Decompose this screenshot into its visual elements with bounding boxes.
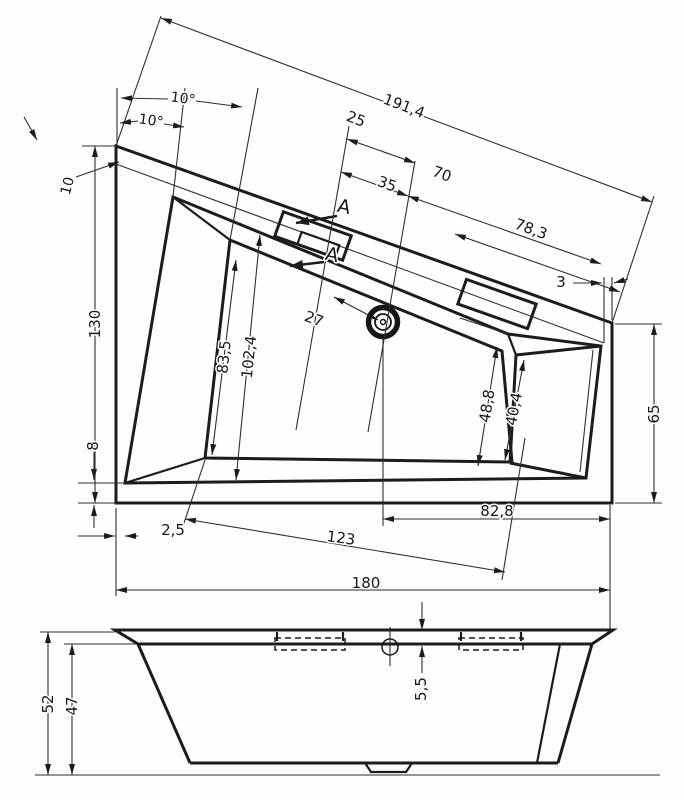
- dim-line-35: [341, 172, 408, 196]
- side-drain-symbol: [382, 627, 398, 666]
- dim-label-48-8: 48,8: [475, 388, 498, 424]
- drawing-sheet: 10° 10° 10 191,4 25 35 70 78,3 3 130 27 …: [0, 0, 684, 800]
- dim-label-52: 52: [39, 694, 57, 713]
- dim-label-70: 70: [430, 162, 454, 185]
- dim-label-8: 8: [84, 441, 102, 451]
- dim-label-83-5: 83,5: [213, 339, 234, 374]
- corner-fold-lines: [125, 197, 516, 483]
- dim-label-5-5: 5,5: [412, 677, 430, 701]
- section-arrow-bottom: [290, 262, 324, 266]
- side-right-wall-inner: [537, 644, 560, 763]
- dim-label-47: 47: [63, 696, 81, 715]
- dim-line-70: [408, 196, 601, 264]
- dim-label-25: 25: [344, 107, 368, 130]
- dim-label-82-8: 82,8: [480, 502, 513, 520]
- dim-label-angle-lower: 10°: [138, 111, 165, 130]
- dim-label-191-4: 191,4: [381, 90, 428, 122]
- dim-label-180: 180: [352, 574, 381, 592]
- drain-fitting: [369, 308, 398, 337]
- dim-label-2-5: 2,5: [161, 521, 185, 539]
- dim-label-27: 27: [302, 307, 326, 330]
- leader-rim-10-outer: [24, 117, 37, 140]
- dim-label-rim-10: 10: [58, 175, 78, 196]
- side-right-wall-outer: [558, 644, 592, 763]
- leader-rim-10: [76, 162, 119, 177]
- recess-ticks: [277, 632, 521, 641]
- basin-opening-outline: [125, 197, 601, 483]
- section-label-a-top: A: [335, 195, 352, 219]
- dim-label-102-4: 102,4: [238, 335, 260, 380]
- dim-label-130: 130: [86, 310, 104, 339]
- dim-label-123: 123: [326, 527, 357, 549]
- dim-label-angle-upper: 10°: [170, 89, 197, 108]
- dimension-lines: [24, 18, 654, 775]
- seat-bench-inner-line: [580, 350, 593, 472]
- dim-line-27: [334, 297, 378, 320]
- dim-line-25: [347, 139, 415, 163]
- side-left-wall: [138, 644, 190, 763]
- top-view: [116, 146, 612, 503]
- dim-label-35: 35: [375, 172, 399, 195]
- side-view: [35, 627, 660, 775]
- technical-drawing: 10° 10° 10 191,4 25 35 70 78,3 3 130 27 …: [0, 0, 684, 800]
- tub-outer-outline: [116, 146, 612, 503]
- dim-label-65: 65: [645, 404, 663, 423]
- dim-label-3: 3: [556, 273, 566, 291]
- leader-angle2-left: [120, 121, 138, 123]
- leader-angle1-right: [196, 101, 242, 107]
- leader-angle1-left: [121, 98, 168, 99]
- dimension-labels: 10° 10° 10 191,4 25 35 70 78,3 3 130 27 …: [39, 89, 663, 715]
- side-rim: [115, 630, 613, 644]
